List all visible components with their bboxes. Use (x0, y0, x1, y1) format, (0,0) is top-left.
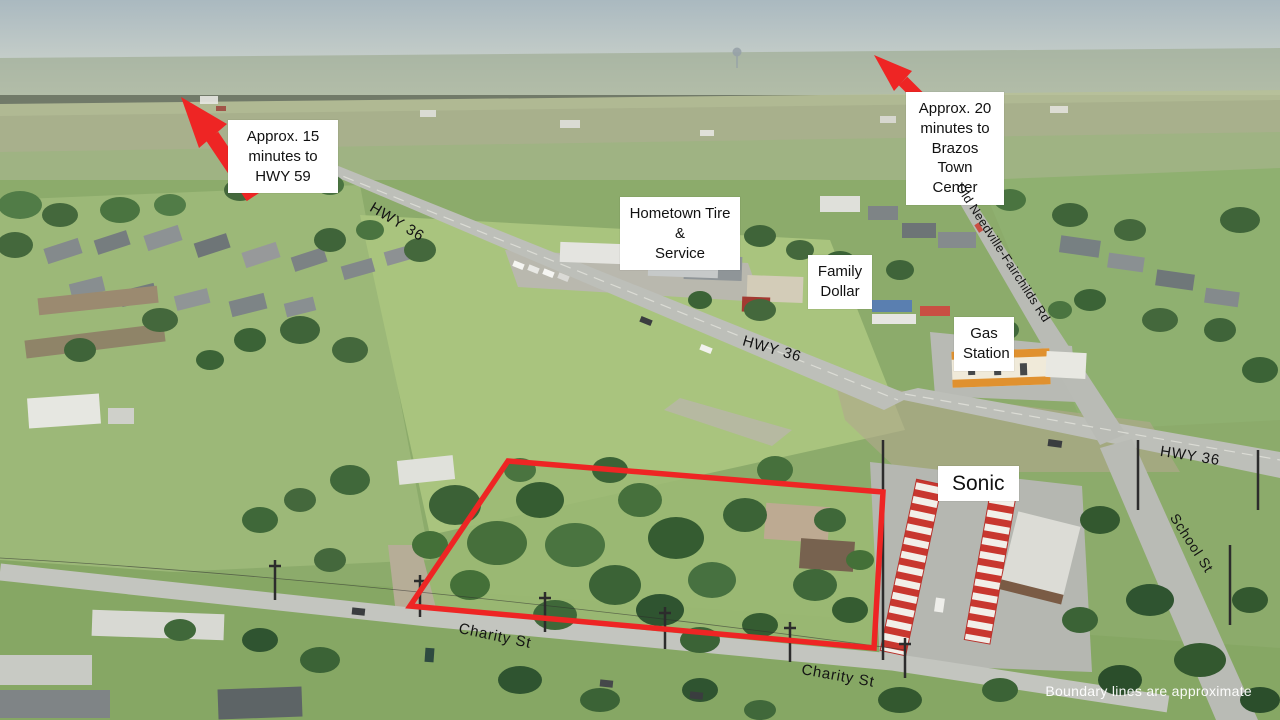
poi-label-gas-station: Gas Station (954, 317, 1014, 371)
road-label-hwy36-right: HWY 36 (1159, 443, 1221, 469)
road-label-charity-st-west: Charity St (457, 620, 533, 652)
road-label-school-st: School St (1167, 510, 1217, 575)
road-label-hwy36-mid: HWY 36 (741, 333, 804, 366)
road-label-charity-st-east: Charity St (800, 661, 876, 691)
aerial-listing-photo: Approx. 15 minutes to HWY 59 Approx. 20 … (0, 0, 1280, 720)
poi-label-sonic: Sonic (938, 466, 1019, 501)
travel-callout-hwy59: Approx. 15 minutes to HWY 59 (228, 120, 338, 193)
boundary-disclaimer: Boundary lines are approximate (1045, 683, 1252, 699)
poi-label-hometown-tire-service: Hometown Tire & Service (620, 197, 740, 270)
annotation-overlay: Approx. 15 minutes to HWY 59 Approx. 20 … (0, 0, 1280, 720)
poi-label-family-dollar: Family Dollar (808, 255, 872, 309)
road-label-hwy36-top: HWY 36 (367, 199, 428, 245)
